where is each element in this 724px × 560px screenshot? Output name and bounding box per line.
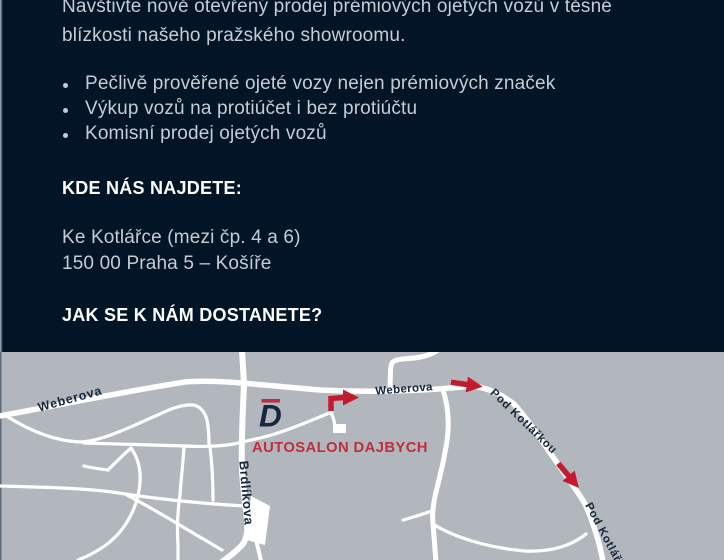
svg-text:AUTOSALON DAJBYCH: AUTOSALON DAJBYCH	[252, 440, 428, 456]
svg-text:D: D	[259, 398, 282, 434]
